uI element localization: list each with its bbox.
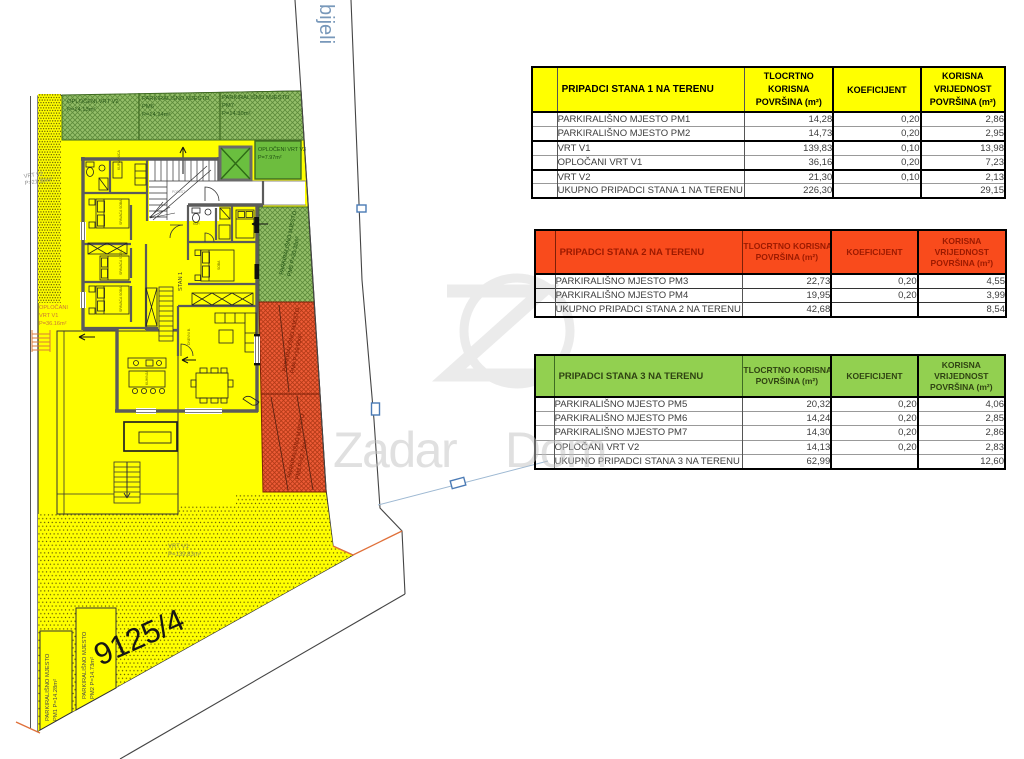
svg-text:SPAVAĆA SOBA: SPAVAĆA SOBA [118, 286, 123, 312]
svg-text:P=139.83m²: P=139.83m² [168, 552, 201, 558]
svg-text:OPLOČANI: OPLOČANI [39, 304, 68, 311]
svg-text:SPAVAĆA SOBA: SPAVAĆA SOBA [118, 199, 123, 225]
svg-text:P=36.16m²: P=36.16m² [39, 321, 67, 327]
svg-text:PM7: PM7 [222, 103, 234, 109]
svg-text:SPAVAĆA SOBA: SPAVAĆA SOBA [118, 249, 123, 275]
svg-text:PM1 P=14.28m²: PM1 P=14.28m² [53, 679, 59, 721]
svg-text:PARKIRALIŠNO MJESTO: PARKIRALIŠNO MJESTO [222, 94, 290, 101]
svg-text:P=14.13m²: P=14.13m² [67, 107, 96, 113]
svg-text:PM2 P=14.73m²: PM2 P=14.73m² [90, 657, 96, 699]
svg-text:P=7.97m²: P=7.97m² [258, 155, 282, 161]
svg-text:bijeli: bijeli [315, 4, 337, 44]
svg-text:PARKIRALIŠNO MJESTO: PARKIRALIŠNO MJESTO [44, 653, 51, 721]
svg-text:DNEVNI B.: DNEVNI B. [187, 328, 191, 345]
svg-text:PARKIRALIŠNO MJESTO: PARKIRALIŠNO MJESTO [142, 95, 210, 102]
svg-text:KUHINJA: KUHINJA [145, 370, 149, 385]
svg-text:VRT V1: VRT V1 [39, 313, 58, 319]
svg-text:STAN 1: STAN 1 [178, 272, 184, 291]
svg-text:P=14.30m²: P=14.30m² [222, 111, 251, 117]
svg-text:OPLOČENI VRT V3: OPLOČENI VRT V3 [258, 146, 306, 153]
svg-text:PODEST: PODEST [172, 190, 185, 194]
svg-text:SOBA: SOBA [217, 260, 221, 270]
svg-text:P=14.24m²: P=14.24m² [142, 112, 171, 118]
svg-text:KUPAONICA: KUPAONICA [117, 150, 121, 170]
svg-text:PM6: PM6 [142, 104, 154, 110]
svg-text:PARKIRALIŠNO MJESTO: PARKIRALIŠNO MJESTO [81, 631, 88, 699]
svg-text:VRT V1: VRT V1 [168, 544, 189, 550]
svg-text:OPLOČENI VRT V2: OPLOČENI VRT V2 [67, 98, 119, 105]
